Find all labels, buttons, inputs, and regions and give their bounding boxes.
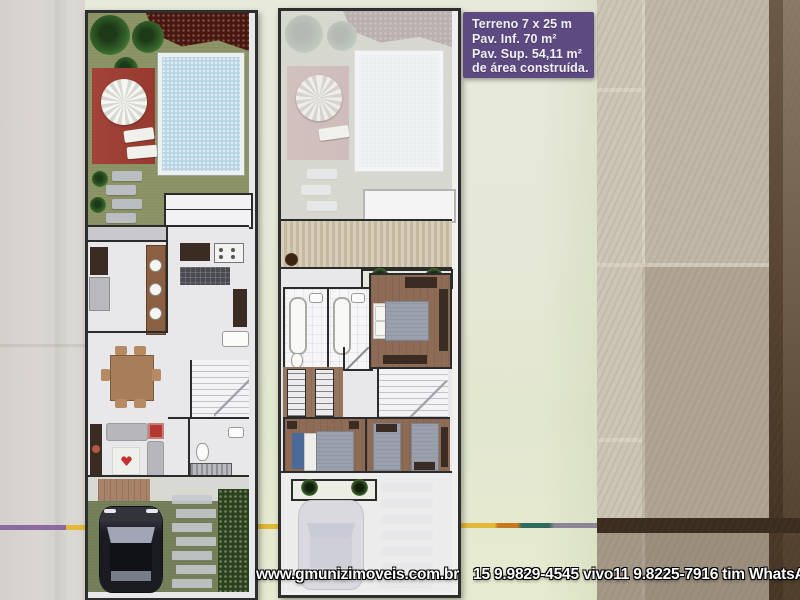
entry-deck bbox=[98, 479, 150, 501]
tv-bench bbox=[383, 355, 427, 364]
bathroom-sink bbox=[228, 427, 244, 438]
bar-stool bbox=[149, 307, 162, 320]
desk bbox=[405, 277, 437, 288]
ghost-tree bbox=[285, 15, 323, 53]
bush bbox=[92, 171, 108, 187]
front-yard-grass bbox=[88, 501, 249, 592]
dining-table bbox=[110, 355, 154, 401]
bed-runner-blue bbox=[292, 433, 304, 469]
single-bed bbox=[411, 423, 439, 471]
ghost-parasol bbox=[296, 75, 342, 121]
planter-plant bbox=[351, 479, 368, 496]
toilet bbox=[291, 353, 303, 368]
walkway-stone bbox=[176, 509, 216, 518]
ghost-stone bbox=[301, 185, 331, 195]
nightstand bbox=[287, 421, 297, 429]
accent-stripe-yellow bbox=[66, 525, 85, 530]
single-bed bbox=[373, 423, 401, 471]
sofa bbox=[106, 423, 148, 441]
ghost-backyard bbox=[281, 11, 452, 219]
ghost-stone bbox=[307, 201, 337, 211]
closet bbox=[287, 369, 306, 417]
walkway-stone bbox=[172, 551, 212, 560]
corner-shower bbox=[343, 347, 371, 369]
bed-pillow-dark bbox=[376, 424, 397, 432]
toilet bbox=[196, 443, 209, 461]
wall bbox=[168, 417, 249, 419]
potted-plant bbox=[285, 253, 298, 266]
dining-chair bbox=[101, 369, 110, 381]
tree bbox=[90, 15, 130, 55]
closet-corridor bbox=[283, 367, 343, 417]
pergola-roof bbox=[281, 219, 452, 269]
car-headlight bbox=[104, 509, 116, 513]
rug bbox=[112, 447, 140, 475]
tv-sideboard bbox=[90, 424, 102, 475]
bush bbox=[90, 197, 106, 213]
stair-winder bbox=[409, 381, 448, 417]
bathroom-sink bbox=[309, 293, 323, 303]
ghost-pool bbox=[355, 51, 443, 171]
bathrooms bbox=[283, 287, 373, 371]
bathroom-sink bbox=[351, 293, 365, 303]
wall bbox=[166, 209, 251, 210]
walkway-stone bbox=[172, 579, 212, 588]
folded-paper-left-edge bbox=[0, 0, 85, 600]
dining-chair bbox=[115, 399, 127, 408]
shelf bbox=[441, 427, 448, 467]
front-flowerbed bbox=[218, 489, 249, 592]
bathtub bbox=[289, 297, 307, 355]
bar-stool bbox=[149, 283, 162, 296]
dining-chair bbox=[134, 399, 146, 408]
stepping-stone bbox=[112, 171, 142, 181]
kitchen-sink-counter bbox=[180, 243, 210, 261]
burner bbox=[219, 255, 223, 259]
planter-plant bbox=[301, 479, 318, 496]
stepping-stone bbox=[112, 199, 142, 209]
sofa-chaise bbox=[147, 441, 164, 477]
tree bbox=[132, 21, 164, 53]
wall bbox=[327, 289, 329, 369]
walkway-stone bbox=[172, 495, 212, 504]
walkway-stone bbox=[176, 537, 216, 546]
wall bbox=[166, 227, 168, 333]
ground-floor-interior bbox=[88, 225, 249, 477]
staircase-upper bbox=[377, 369, 448, 419]
contact-bar: www.gmunizimoveis.com.br15 9.9829-4545 v… bbox=[256, 566, 800, 588]
website-text: www.gmunizimoveis.com.br bbox=[256, 566, 459, 583]
tiled-wall bbox=[597, 0, 800, 600]
car bbox=[100, 507, 162, 592]
walkway-stone bbox=[172, 523, 212, 532]
stair-winder bbox=[214, 378, 249, 418]
double-bed bbox=[385, 301, 429, 341]
dining-chair bbox=[115, 346, 127, 355]
burner bbox=[219, 248, 223, 252]
service-area bbox=[164, 193, 253, 229]
dining-chair bbox=[134, 346, 146, 355]
car-roof bbox=[110, 543, 152, 571]
wall bbox=[88, 240, 166, 242]
ghost-stone bbox=[307, 169, 337, 179]
ghost-car-roof bbox=[310, 538, 352, 568]
pantry-cabinet bbox=[233, 289, 247, 327]
info-line-area: de área construída. bbox=[472, 61, 594, 76]
bedroom-3 bbox=[365, 417, 450, 473]
ghost-service-area bbox=[363, 189, 456, 223]
terrace-strip bbox=[88, 227, 166, 240]
car-rear-window bbox=[111, 571, 151, 581]
staircase bbox=[190, 360, 249, 418]
burner bbox=[231, 255, 235, 259]
burner bbox=[231, 248, 235, 252]
walkway-stone bbox=[176, 565, 216, 574]
car-windshield bbox=[107, 527, 155, 543]
red-armchair bbox=[148, 423, 164, 439]
ground-floor-plan bbox=[85, 10, 258, 600]
upper-floor-interior bbox=[281, 267, 452, 473]
upper-floor-plan bbox=[278, 8, 461, 598]
front-planter bbox=[291, 479, 377, 501]
swimming-pool bbox=[158, 53, 244, 175]
wardrobe bbox=[439, 289, 448, 351]
ghost-tree bbox=[327, 21, 357, 51]
flyer-right-shading bbox=[540, 0, 597, 600]
nightstand bbox=[349, 421, 359, 429]
phone-text: 15 9.9829-4545 vivo11 9.8225-7916 tim Wh… bbox=[473, 566, 800, 583]
heart-decor bbox=[121, 456, 132, 466]
master-bedroom bbox=[369, 273, 452, 369]
stepping-stone bbox=[106, 213, 136, 223]
accent-stripe-purple bbox=[0, 525, 66, 530]
info-line-terreno: Terreno 7 x 25 m bbox=[472, 17, 594, 32]
double-bed bbox=[316, 431, 354, 473]
bar-stool bbox=[149, 259, 162, 272]
ghost-car-windshield bbox=[307, 523, 355, 538]
refrigerator bbox=[90, 247, 108, 275]
tile-wood-grain bbox=[597, 0, 800, 600]
info-line-pav-sup: Pav. Sup. 54,11 m² bbox=[472, 47, 594, 62]
decor-lamp bbox=[92, 445, 100, 453]
closet bbox=[315, 369, 334, 417]
dining-chair bbox=[152, 369, 161, 381]
counter bbox=[222, 331, 249, 347]
car-headlight bbox=[146, 509, 158, 513]
bed-pillow-dark bbox=[414, 462, 435, 470]
bedroom-2 bbox=[283, 417, 367, 473]
accent-stripe-multicolor bbox=[455, 523, 597, 528]
info-box: Terreno 7 x 25 m Pav. Inf. 70 m² Pav. Su… bbox=[463, 12, 594, 78]
stepping-stone bbox=[106, 185, 136, 195]
wall bbox=[88, 331, 168, 333]
parasol bbox=[101, 79, 147, 125]
stove bbox=[214, 243, 244, 263]
kitchen-counter bbox=[180, 267, 230, 285]
paper-crease bbox=[0, 344, 85, 347]
info-line-pav-inf: Pav. Inf. 70 m² bbox=[472, 32, 594, 47]
kitchen-cabinet bbox=[89, 277, 110, 311]
photo-of-floorplan-flyer: Terreno 7 x 25 m Pav. Inf. 70 m² Pav. Su… bbox=[0, 0, 800, 600]
